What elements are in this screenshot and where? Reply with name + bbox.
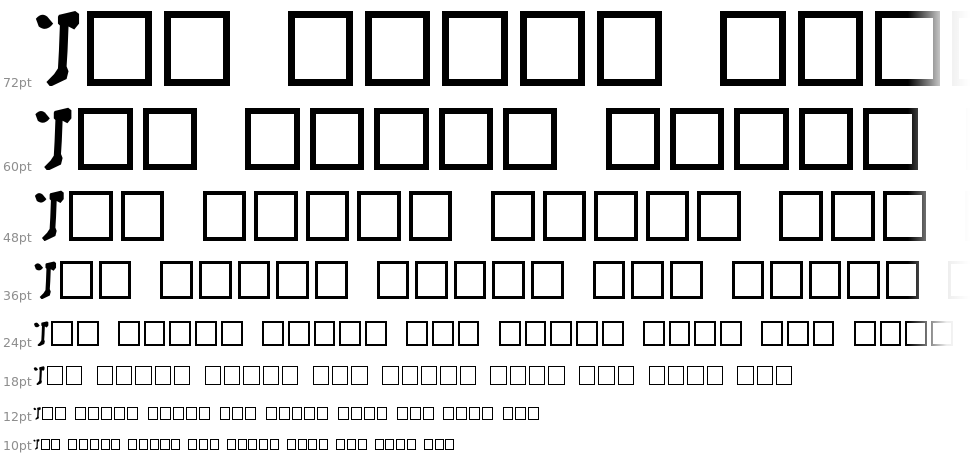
size-label: 60pt xyxy=(3,159,32,174)
word-space xyxy=(354,298,377,299)
missing-glyph-box xyxy=(314,321,336,346)
missing-glyph-box xyxy=(365,11,430,86)
missing-glyph-box xyxy=(171,439,180,449)
missing-glyph-box xyxy=(199,261,232,298)
word-space xyxy=(957,345,970,346)
missing-glyph-box xyxy=(114,407,125,419)
missing-glyph-box xyxy=(347,439,356,449)
missing-glyph-box xyxy=(520,11,585,86)
missing-glyph-box xyxy=(669,321,691,346)
missing-glyph-box xyxy=(150,439,159,449)
missing-glyph-box xyxy=(886,261,919,298)
missing-glyph-box xyxy=(288,11,353,86)
missing-glyph-box xyxy=(227,439,236,449)
missing-glyph-box xyxy=(288,321,310,346)
word-space xyxy=(709,298,732,299)
waterfall-row-12pt xyxy=(33,407,970,420)
missing-glyph-box xyxy=(51,321,73,346)
missing-glyph-box xyxy=(315,261,348,298)
missing-glyph-box xyxy=(313,366,329,385)
missing-glyph-box xyxy=(79,439,88,449)
missing-glyph-box xyxy=(160,407,171,419)
word-space xyxy=(207,169,245,170)
missing-glyph-box xyxy=(377,261,410,298)
missing-glyph-box xyxy=(406,321,428,346)
missing-glyph-box xyxy=(310,108,364,170)
missing-glyph-box xyxy=(42,407,53,419)
letter-T-glyph xyxy=(33,190,66,241)
missing-glyph-box xyxy=(423,407,434,419)
missing-glyph-box xyxy=(548,366,564,385)
missing-glyph-box xyxy=(618,366,634,385)
waterfall-row-18pt xyxy=(33,366,970,385)
missing-glyph-box xyxy=(287,439,296,449)
missing-glyph-box xyxy=(221,321,243,346)
missing-glyph-box xyxy=(402,366,418,385)
missing-glyph-box xyxy=(66,366,82,385)
missing-glyph-box xyxy=(51,439,60,449)
missing-glyph-box xyxy=(317,407,328,419)
missing-glyph-box xyxy=(440,366,456,385)
waterfall-row-10pt xyxy=(33,439,970,450)
missing-glyph-box xyxy=(148,407,159,419)
missing-glyph-box xyxy=(90,439,99,449)
missing-glyph-box xyxy=(643,321,665,346)
missing-glyph-box xyxy=(266,407,277,419)
missing-glyph-box xyxy=(720,11,785,86)
word-space xyxy=(483,345,498,346)
missing-glyph-box xyxy=(503,407,514,419)
word-space xyxy=(193,384,205,385)
missing-glyph-box xyxy=(445,439,454,449)
word-space xyxy=(258,419,266,420)
missing-glyph-box xyxy=(550,321,572,346)
missing-glyph-box xyxy=(160,439,169,449)
missing-glyph-box xyxy=(798,11,863,86)
missing-glyph-box xyxy=(499,321,521,346)
missing-glyph-box xyxy=(155,366,171,385)
word-space xyxy=(172,240,203,241)
missing-glyph-box xyxy=(308,439,317,449)
missing-glyph-box xyxy=(694,321,716,346)
missing-glyph-box xyxy=(606,108,660,170)
missing-glyph-box xyxy=(409,191,453,241)
word-space xyxy=(85,384,97,385)
word-space xyxy=(391,345,406,346)
missing-glyph-box xyxy=(243,366,259,385)
missing-glyph-box xyxy=(304,407,315,419)
missing-glyph-box xyxy=(203,191,247,241)
waterfall-row-48pt xyxy=(33,190,970,241)
missing-glyph-box xyxy=(407,439,416,449)
missing-glyph-box xyxy=(245,108,299,170)
missing-glyph-box xyxy=(336,439,345,449)
missing-glyph-box xyxy=(259,439,268,449)
missing-glyph-box xyxy=(707,366,723,385)
missing-glyph-box xyxy=(668,366,684,385)
missing-glyph-box xyxy=(809,261,842,298)
missing-glyph-box xyxy=(339,321,361,346)
word-space xyxy=(925,298,948,299)
missing-glyph-box xyxy=(543,191,587,241)
missing-glyph-box xyxy=(60,261,93,298)
missing-glyph-box xyxy=(734,108,788,170)
missing-glyph-box xyxy=(396,439,405,449)
missing-glyph-box xyxy=(776,366,792,385)
word-space xyxy=(928,169,966,170)
word-space xyxy=(212,419,220,420)
missing-glyph-box xyxy=(525,321,547,346)
missing-glyph-box xyxy=(377,407,388,419)
missing-glyph-box xyxy=(135,366,151,385)
word-space xyxy=(746,345,761,346)
missing-glyph-box xyxy=(188,439,197,449)
missing-glyph-box xyxy=(160,261,193,298)
word-space xyxy=(570,298,593,299)
missing-glyph-box xyxy=(490,366,506,385)
missing-glyph-box xyxy=(357,191,401,241)
missing-glyph-box xyxy=(351,366,367,385)
missing-glyph-box xyxy=(385,439,394,449)
missing-glyph-box xyxy=(210,439,219,449)
missing-glyph-box xyxy=(364,407,375,419)
missing-glyph-box xyxy=(374,108,428,170)
size-label: 24pt xyxy=(3,335,32,350)
missing-glyph-box xyxy=(482,407,493,419)
missing-glyph-box xyxy=(799,108,853,170)
word-space xyxy=(140,419,148,420)
word-space xyxy=(637,384,649,385)
missing-glyph-box xyxy=(205,366,221,385)
missing-glyph-box xyxy=(276,261,309,298)
missing-glyph-box xyxy=(220,407,231,419)
letter-T-glyph xyxy=(33,261,58,299)
missing-glyph-box xyxy=(68,439,77,449)
missing-glyph-box xyxy=(111,439,120,449)
missing-glyph-box xyxy=(118,321,140,346)
missing-glyph-box xyxy=(365,321,387,346)
missing-glyph-box xyxy=(670,261,703,298)
waterfall-row-60pt xyxy=(33,107,970,170)
missing-glyph-box xyxy=(97,366,113,385)
missing-glyph-box xyxy=(319,439,328,449)
word-space xyxy=(436,419,444,420)
missing-glyph-box xyxy=(854,321,876,346)
missing-glyph-box xyxy=(579,366,595,385)
missing-glyph-box xyxy=(144,321,166,346)
word-space xyxy=(242,85,288,86)
missing-glyph-box xyxy=(270,439,279,449)
missing-glyph-box xyxy=(966,108,970,170)
missing-glyph-box xyxy=(174,366,190,385)
word-space xyxy=(330,419,338,420)
missing-glyph-box xyxy=(127,407,138,419)
missing-glyph-box xyxy=(442,11,507,86)
word-space xyxy=(371,384,383,385)
waterfall-row-72pt xyxy=(33,10,970,86)
size-label: 36pt xyxy=(3,288,32,303)
missing-glyph-box xyxy=(948,261,970,298)
missing-glyph-box xyxy=(602,321,624,346)
missing-glyph-box xyxy=(435,439,444,449)
word-space xyxy=(838,345,853,346)
missing-glyph-box xyxy=(262,321,284,346)
missing-glyph-box xyxy=(75,407,86,419)
missing-glyph-box xyxy=(164,11,229,86)
missing-glyph-box xyxy=(306,191,350,241)
missing-glyph-box xyxy=(460,366,476,385)
word-space xyxy=(389,419,397,420)
missing-glyph-box xyxy=(598,366,614,385)
missing-glyph-box xyxy=(41,439,50,449)
missing-glyph-box xyxy=(128,439,137,449)
word-space xyxy=(726,384,738,385)
waterfall-row-24pt xyxy=(33,321,970,346)
missing-glyph-box xyxy=(779,191,823,241)
missing-glyph-box xyxy=(173,407,184,419)
missing-glyph-box xyxy=(952,11,970,86)
missing-glyph-box xyxy=(732,261,765,298)
word-space xyxy=(934,240,965,241)
missing-glyph-box xyxy=(169,321,191,346)
missing-glyph-box xyxy=(770,261,803,298)
missing-glyph-box xyxy=(515,407,526,419)
missing-glyph-box xyxy=(454,261,487,298)
word-space xyxy=(247,345,262,346)
missing-glyph-box xyxy=(382,366,398,385)
missing-glyph-box xyxy=(593,261,626,298)
missing-glyph-box xyxy=(88,407,99,419)
word-space xyxy=(568,384,580,385)
word-space xyxy=(103,345,118,346)
missing-glyph-box xyxy=(863,108,917,170)
missing-glyph-box xyxy=(116,366,132,385)
missing-glyph-box xyxy=(87,11,152,86)
letter-T-glyph xyxy=(33,407,41,420)
missing-glyph-box xyxy=(358,439,367,449)
missing-glyph-box xyxy=(646,191,690,241)
missing-glyph-box xyxy=(279,407,290,419)
missing-glyph-box xyxy=(458,321,480,346)
missing-glyph-box xyxy=(697,191,741,241)
missing-glyph-box xyxy=(238,439,247,449)
missing-glyph-box xyxy=(875,11,940,86)
missing-glyph-box xyxy=(594,191,638,241)
missing-glyph-box xyxy=(847,261,880,298)
missing-glyph-box xyxy=(424,439,433,449)
missing-glyph-box xyxy=(69,191,113,241)
missing-glyph-box xyxy=(238,261,271,298)
missing-glyph-box xyxy=(338,407,349,419)
missing-glyph-box xyxy=(432,321,454,346)
missing-glyph-box xyxy=(397,407,408,419)
size-label: 18pt xyxy=(3,374,32,389)
missing-glyph-box xyxy=(528,407,539,419)
missing-glyph-box xyxy=(469,407,480,419)
missing-glyph-box xyxy=(199,407,210,419)
missing-glyph-box xyxy=(143,108,197,170)
font-waterfall-preview: 72pt60pt48pt36pt24pt18pt12pt10pt xyxy=(0,0,970,457)
word-space xyxy=(674,85,720,86)
missing-glyph-box xyxy=(670,108,724,170)
missing-glyph-box xyxy=(410,407,421,419)
missing-glyph-box xyxy=(332,366,348,385)
missing-glyph-box xyxy=(757,366,773,385)
missing-glyph-box xyxy=(375,439,384,449)
missing-glyph-box xyxy=(503,108,557,170)
missing-glyph-box xyxy=(139,439,148,449)
missing-glyph-box xyxy=(531,261,564,298)
missing-glyph-box xyxy=(737,366,753,385)
size-label: 72pt xyxy=(3,75,32,90)
missing-glyph-box xyxy=(298,439,307,449)
missing-glyph-box xyxy=(186,407,197,419)
missing-glyph-box xyxy=(631,261,664,298)
missing-glyph-box xyxy=(529,366,545,385)
missing-glyph-box xyxy=(101,439,110,449)
word-space xyxy=(495,419,503,420)
missing-glyph-box xyxy=(491,191,535,241)
missing-glyph-box xyxy=(195,321,217,346)
size-label: 10pt xyxy=(3,438,32,453)
missing-glyph-box xyxy=(263,366,279,385)
letter-T-glyph xyxy=(33,366,45,385)
missing-glyph-box xyxy=(99,261,132,298)
missing-glyph-box xyxy=(224,366,240,385)
missing-glyph-box xyxy=(292,407,303,419)
letter-T-glyph xyxy=(33,10,83,86)
missing-glyph-box xyxy=(813,321,835,346)
missing-glyph-box xyxy=(687,366,703,385)
missing-glyph-box xyxy=(831,191,875,241)
missing-glyph-box xyxy=(905,321,927,346)
missing-glyph-box xyxy=(649,366,665,385)
missing-glyph-box xyxy=(254,191,298,241)
missing-glyph-box xyxy=(965,191,970,241)
missing-glyph-box xyxy=(492,261,525,298)
missing-glyph-box xyxy=(77,321,99,346)
missing-glyph-box xyxy=(787,321,809,346)
missing-glyph-box xyxy=(576,321,598,346)
missing-glyph-box xyxy=(232,407,243,419)
missing-glyph-box xyxy=(55,407,66,419)
missing-glyph-box xyxy=(351,407,362,419)
missing-glyph-box xyxy=(199,439,208,449)
word-space xyxy=(749,240,780,241)
missing-glyph-box xyxy=(880,321,902,346)
missing-glyph-box xyxy=(456,407,467,419)
size-label: 12pt xyxy=(3,409,32,424)
missing-glyph-box xyxy=(931,321,953,346)
letter-T-glyph xyxy=(33,321,50,346)
missing-glyph-box xyxy=(121,191,165,241)
missing-glyph-box xyxy=(761,321,783,346)
waterfall-row-36pt xyxy=(33,261,970,299)
missing-glyph-box xyxy=(101,407,112,419)
missing-glyph-box xyxy=(883,191,927,241)
missing-glyph-box xyxy=(415,261,448,298)
missing-glyph-box xyxy=(720,321,742,346)
word-space xyxy=(628,345,643,346)
word-space xyxy=(301,384,313,385)
missing-glyph-box xyxy=(421,366,437,385)
word-space xyxy=(460,240,491,241)
missing-glyph-box xyxy=(245,407,256,419)
word-space xyxy=(68,419,76,420)
missing-glyph-box xyxy=(47,366,63,385)
missing-glyph-box xyxy=(78,108,132,170)
missing-glyph-box xyxy=(597,11,662,86)
missing-glyph-box xyxy=(439,108,493,170)
word-space xyxy=(567,169,605,170)
missing-glyph-box xyxy=(510,366,526,385)
letter-T-glyph xyxy=(33,107,75,170)
missing-glyph-box xyxy=(248,439,257,449)
letter-T-glyph xyxy=(33,439,40,450)
size-label: 48pt xyxy=(3,230,32,245)
word-space xyxy=(137,298,160,299)
missing-glyph-box xyxy=(443,407,454,419)
word-space xyxy=(479,384,491,385)
missing-glyph-box xyxy=(282,366,298,385)
